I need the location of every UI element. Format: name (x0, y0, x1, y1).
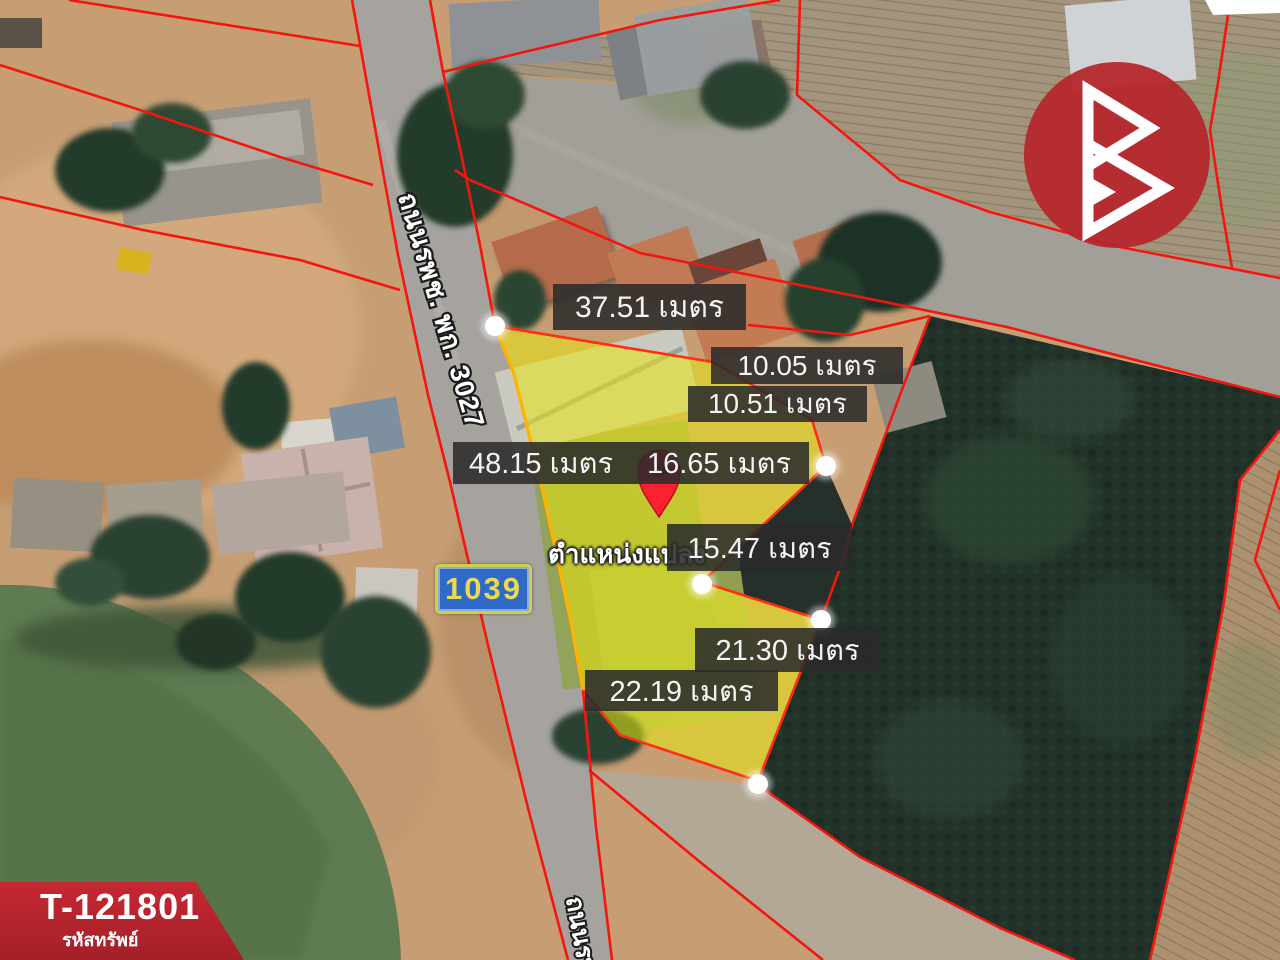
measurement-label-northeast-upper: 10.05 เมตร (711, 347, 903, 384)
top-right-white-strip (1205, 0, 1280, 15)
measurement-label-south: 22.19 เมตร (585, 670, 778, 711)
property-code-caption: รหัสทรัพย์ (62, 925, 138, 954)
company-logo (1024, 62, 1210, 248)
measurement-label-southeast: 21.30 เมตร (695, 628, 880, 672)
listing-map-image: ถนนรพช. พก. 3027 ถนนรพ ตำแหน่งแปลง 37.51… (0, 0, 1280, 960)
measurement-label-east-middle: 15.47 เมตร (667, 524, 852, 571)
property-code: T-121801 (40, 888, 200, 926)
measurement-label-north: 37.51 เมตร (553, 284, 746, 330)
route-number-sign: 1039 (435, 564, 532, 614)
measurement-label-east-upper: 16.65 เมตร (629, 442, 809, 484)
measurement-label-west: 48.15 เมตร (453, 442, 629, 484)
measurement-label-northeast-lower: 10.51 เมตร (688, 386, 867, 422)
